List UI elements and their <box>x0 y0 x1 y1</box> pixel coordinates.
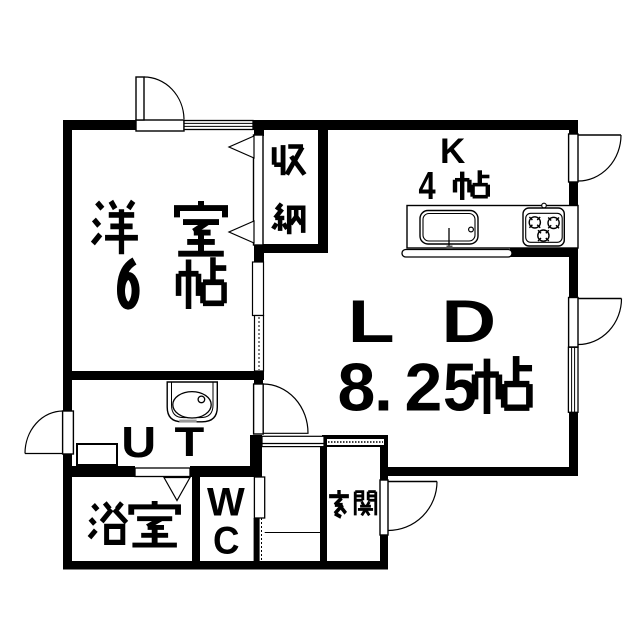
svg-text:8.2: 8.2 <box>338 350 443 426</box>
svg-text:K: K <box>440 132 465 171</box>
svg-text:W: W <box>207 481 245 525</box>
svg-text:D: D <box>442 288 497 355</box>
svg-text:T: T <box>175 418 205 465</box>
svg-text:C: C <box>213 519 239 562</box>
svg-text:4: 4 <box>419 165 437 208</box>
svg-text:U: U <box>121 417 156 466</box>
svg-text:L: L <box>348 288 395 355</box>
